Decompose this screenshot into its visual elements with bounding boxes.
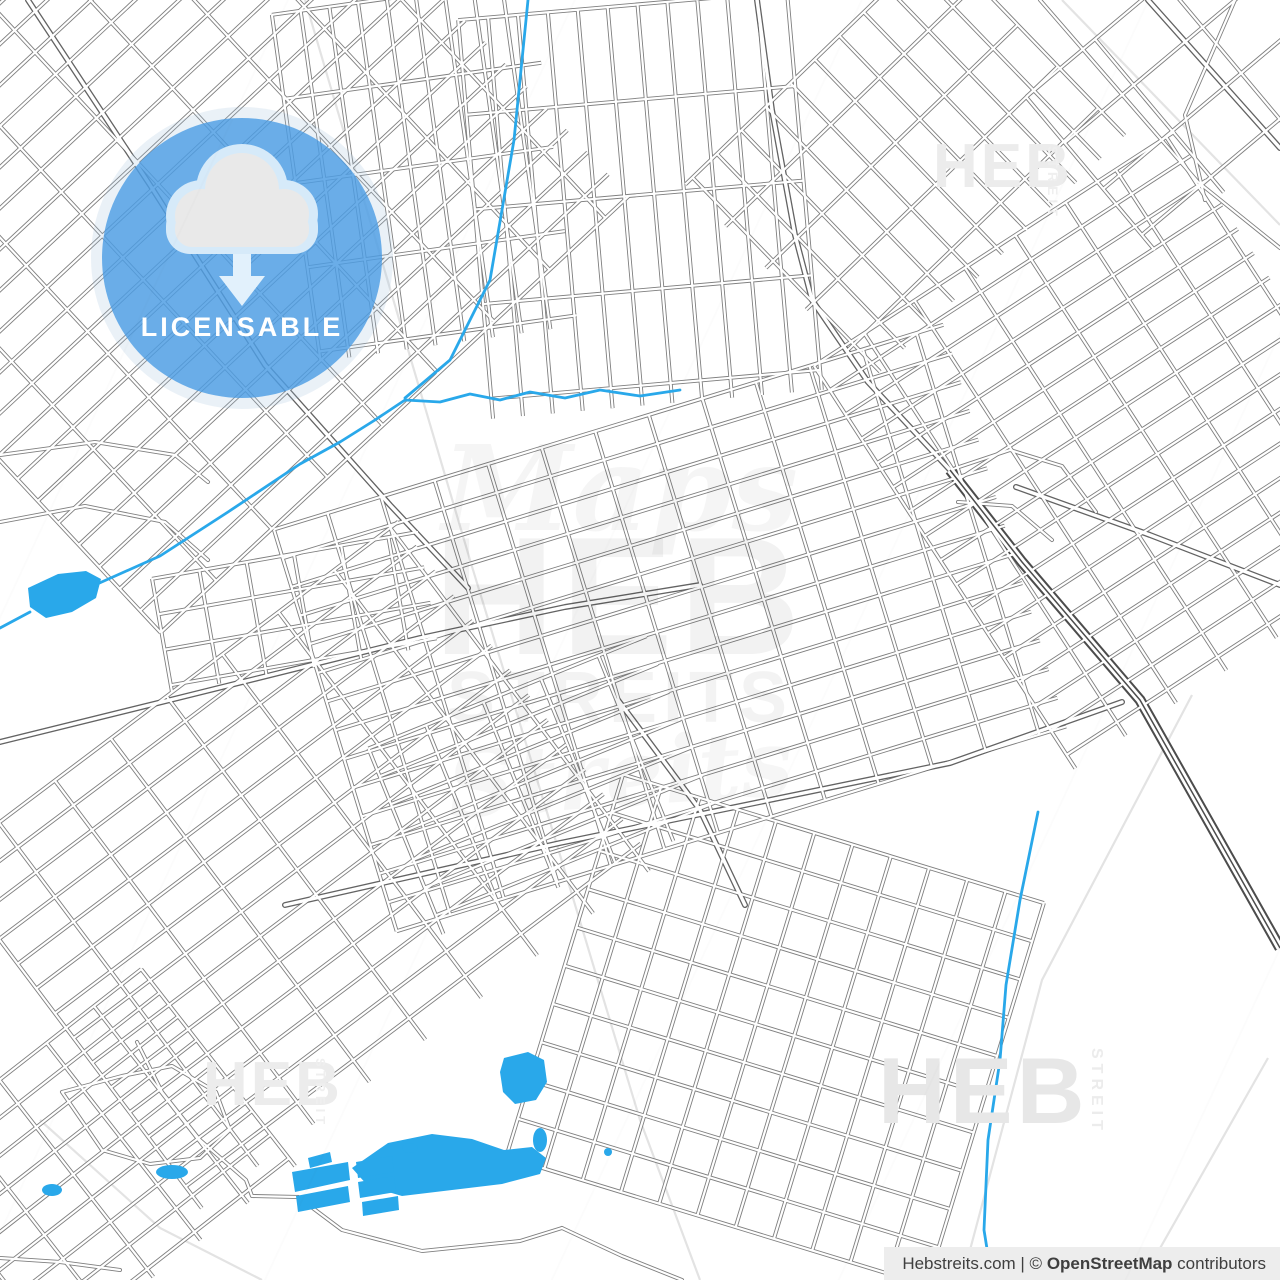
attribution-bar: Hebstreits.com | © OpenStreetMap contrib… bbox=[884, 1247, 1280, 1280]
attribution-site[interactable]: Hebstreits.com | © bbox=[902, 1254, 1046, 1273]
cloud-download-icon bbox=[102, 118, 382, 398]
licensable-badge[interactable]: LICENSABLE bbox=[102, 118, 382, 398]
map-preview-stage: HEB STREIT HEB STREIT HEB STREIT Maps HE… bbox=[0, 0, 1280, 1280]
attribution-osm-link[interactable]: OpenStreetMap bbox=[1047, 1254, 1173, 1273]
badge-label: LICENSABLE bbox=[102, 312, 382, 343]
attribution-suffix: contributors bbox=[1172, 1254, 1266, 1273]
